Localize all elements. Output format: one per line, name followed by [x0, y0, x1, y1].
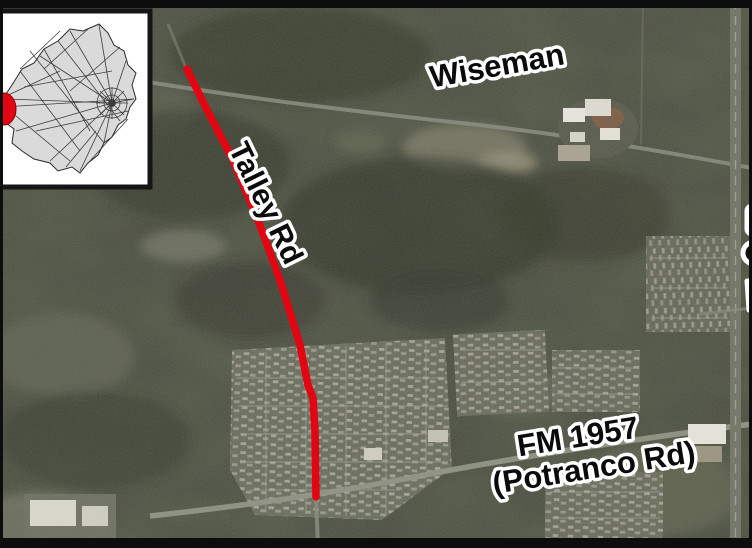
aerial-map-canvas: Wiseman Talley Rd FM 1957 (Potranco Rd) [0, 0, 752, 548]
route-map-figure: Wiseman Talley Rd FM 1957 (Potranco Rd) [0, 0, 752, 548]
inset-locator-map [0, 11, 150, 187]
